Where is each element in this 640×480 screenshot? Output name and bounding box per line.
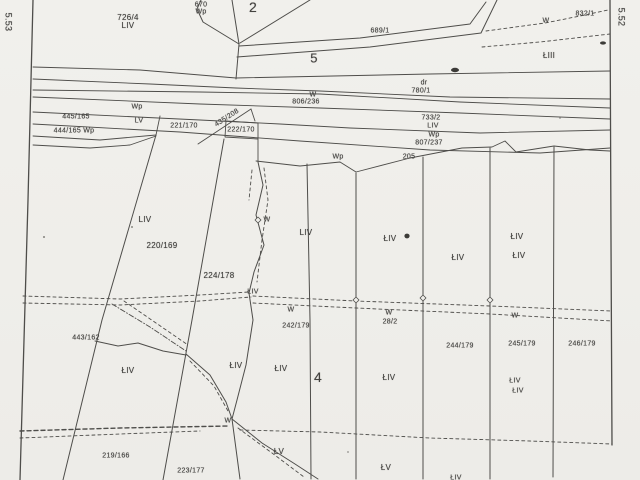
land-class: W	[288, 307, 295, 314]
land-class: Wp	[332, 154, 343, 161]
land-class: Wp	[131, 104, 142, 111]
land-class: ŁIV	[230, 362, 243, 370]
land-class: ŁIV	[513, 252, 526, 260]
land-class: ŁIV	[122, 367, 135, 375]
land-class: ŁIV	[383, 374, 396, 382]
parcel-number: 670	[195, 2, 208, 9]
sheet-coordinate: 5.53	[4, 13, 13, 32]
parcel-number: 780/1	[411, 88, 430, 95]
cadastral-map-scan: 726/4LIV670Wp2689/15W832/1ŁIIIdr780/1W80…	[0, 0, 640, 480]
land-class: LV	[135, 118, 144, 125]
land-class: W	[310, 92, 317, 99]
parcel-number: 221/170	[170, 123, 197, 130]
land-class: W	[225, 418, 232, 425]
land-class: W	[543, 18, 550, 25]
land-class: W	[512, 313, 519, 320]
parcel-number: 245/179	[508, 341, 535, 348]
land-class: ŁIV	[511, 233, 524, 241]
block-number: 4	[314, 370, 322, 384]
land-class: dr	[421, 80, 428, 87]
land-class: W	[386, 310, 393, 317]
parcel-number: 445/165	[62, 114, 89, 121]
land-class: ŁV	[274, 448, 284, 456]
land-class: ŁIV	[247, 289, 258, 296]
parcel-number: 806/236	[292, 99, 319, 106]
parcel-number: 689/1	[370, 28, 389, 35]
parcel-number: 435/208	[214, 108, 241, 129]
land-class: W	[264, 217, 271, 224]
parcel-number: 224/178	[203, 272, 234, 280]
land-class: ŁIV	[450, 475, 461, 480]
parcel-number: 219/166	[102, 453, 129, 460]
land-class: LIV	[122, 22, 135, 30]
sheet-coordinate: 5.52	[617, 8, 626, 27]
parcel-number: 220/169	[146, 242, 177, 250]
land-class: Wp	[428, 132, 439, 139]
parcel-number: 222/170	[227, 127, 254, 134]
land-class: LIV	[139, 216, 152, 224]
parcel-number: 733/2	[421, 115, 440, 122]
parcel-number: 242/179	[282, 323, 309, 330]
parcel-number: 223/177	[177, 468, 204, 475]
parcel-number: 832/1	[575, 11, 594, 18]
land-class: ŁIII	[543, 52, 555, 60]
land-class: ŁIV	[512, 388, 523, 395]
parcel-number: 807/237	[415, 140, 442, 147]
land-class: ŁIV	[452, 254, 465, 262]
land-class: LIV	[427, 123, 438, 130]
parcel-number: 28/2	[383, 319, 398, 326]
land-class: LIV	[300, 229, 313, 237]
parcel-number: 205	[403, 154, 416, 161]
land-class: ŁIV	[509, 378, 520, 385]
parcel-number: 246/179	[568, 341, 595, 348]
land-class: ŁIV	[384, 235, 397, 243]
land-class: Wp	[195, 9, 206, 16]
label-layer: 726/4LIV670Wp2689/15W832/1ŁIIIdr780/1W80…	[0, 0, 640, 480]
parcel-number: 244/179	[446, 343, 473, 350]
parcel-number: 443/162	[72, 335, 99, 342]
block-number: 5	[310, 52, 318, 65]
block-number: 2	[249, 0, 257, 14]
land-class: ŁV	[381, 464, 391, 472]
parcel-number: 444/165 Wp	[54, 128, 95, 135]
land-class: ŁIV	[275, 365, 288, 373]
